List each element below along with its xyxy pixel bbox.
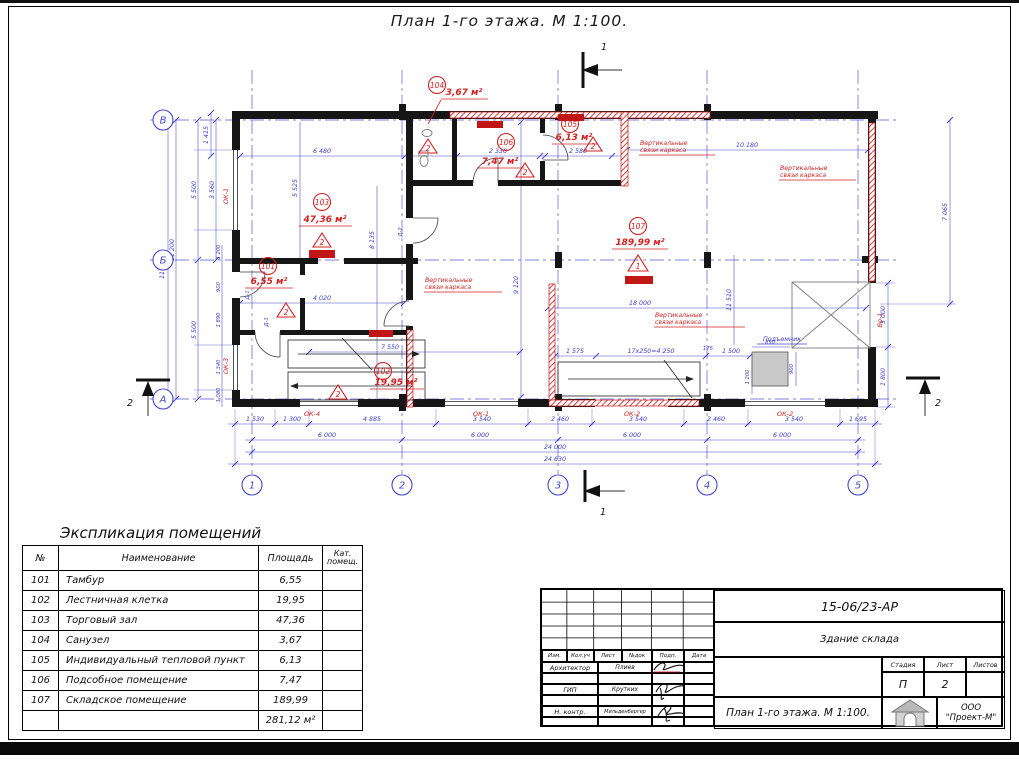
col-area: Площадь (259, 546, 323, 571)
room-area: 189,99 м² (615, 238, 664, 248)
room-area: 47,36 м² (303, 215, 347, 225)
col-cat-line2: помещ. (327, 558, 358, 566)
dim: 175 (703, 346, 714, 352)
room-area: 6,13 м² (556, 133, 593, 143)
room-area: 189,99 (259, 691, 323, 711)
section-label: 1 (601, 42, 607, 53)
dim: 1 890 (216, 312, 222, 328)
stamp-hdr-ndok: №док (622, 650, 652, 662)
sheets-value (966, 672, 1005, 697)
window-label: ОК-3 (222, 358, 230, 374)
annotation: Вертикальные (425, 277, 473, 284)
section-label: 1 (600, 507, 606, 518)
dim: 1 300 (283, 416, 301, 423)
doc-number: 15-06/23-АР (714, 590, 1005, 622)
axis-col: 5 (855, 481, 861, 492)
dim: 4 020 (313, 295, 331, 302)
table-header-row: № Наименование Площадь Кат. помещ. (23, 546, 363, 571)
stamp-hdr-kol: Кол.уч (567, 650, 594, 662)
room-cat (323, 571, 363, 591)
room-area: 7,47 (259, 671, 323, 691)
sheet-label: Лист (924, 657, 966, 672)
role-gip: ГИП (542, 684, 598, 695)
room-area: 3,67 (259, 631, 323, 651)
section-label: 2 (127, 398, 133, 409)
annotation: Вертикальные (640, 140, 688, 147)
dim: 5 500 (191, 181, 198, 199)
blank-cell (598, 673, 652, 684)
stamp-hdr-list: Лист (594, 650, 622, 662)
room-no: 107 (23, 691, 59, 711)
section-label: 2 (935, 398, 941, 409)
window-glyphs (234, 150, 826, 406)
room-area: 19,95 (259, 591, 323, 611)
object-name: Здание склада (714, 622, 1005, 657)
company-name: ООО "Проект-М" (937, 697, 1005, 729)
name-ncontr: Мильденбергер (598, 706, 652, 717)
dim: 10 180 (736, 142, 758, 149)
name-architect: Плиев (598, 662, 652, 673)
company-line1: ООО (961, 703, 981, 713)
annotation: связи каркаса (655, 319, 701, 326)
sheet-value: 2 (924, 672, 966, 697)
dim: 4 885 (363, 416, 381, 423)
table-row: 103 Торговый зал 47,36 (23, 611, 363, 631)
dim: 11 510 (726, 289, 733, 311)
col-num: № (23, 546, 59, 571)
room-number: 104 (430, 81, 445, 90)
room-cat (323, 651, 363, 671)
room-cat: 1 (636, 262, 641, 271)
room-number: 103 (315, 198, 330, 207)
table-row: 104 Санузел 3,67 (23, 631, 363, 651)
annotation: Вертикальные (780, 165, 828, 172)
dim: 900 (216, 281, 222, 292)
room-name: Санузел (59, 631, 259, 651)
dim: 7 065 (942, 203, 949, 221)
blank-cell (542, 695, 598, 706)
room-name: Складское помещение (59, 691, 259, 711)
window-label: ОК-2 (777, 410, 793, 418)
approval-grid (542, 590, 714, 650)
door-label: Д-1 (245, 290, 251, 300)
dim: 1 080 (216, 387, 222, 403)
room-cat (323, 671, 363, 691)
total-empty (59, 711, 259, 731)
room-no: 104 (23, 631, 59, 651)
room-cat (323, 691, 363, 711)
staircase-hall (558, 360, 700, 398)
room-no: 106 (23, 671, 59, 691)
lift-label: Подъемник (763, 336, 801, 343)
room-cat: 2 (426, 144, 431, 153)
room-area: 6,13 (259, 651, 323, 671)
table-row: 105 Индивидуальный тепловой пункт 6,13 (23, 651, 363, 671)
room-cat: 2 (591, 142, 596, 151)
room-number: 102 (376, 367, 391, 376)
dim: 17x250=4 250 (627, 348, 674, 355)
room-number: 105 (563, 120, 578, 129)
room-number: 106 (499, 138, 514, 147)
table-total-row: 281,12 м² (23, 711, 363, 731)
room-no: 102 (23, 591, 59, 611)
room-name: Тамбур (59, 571, 259, 591)
axis-col: 3 (555, 481, 561, 492)
gate-label: Вр-1 (876, 312, 884, 327)
room-cat: 2 (523, 168, 528, 177)
dim: 2 460 (707, 416, 725, 423)
company-line2: "Проект-М" (946, 713, 997, 723)
blank-cell (542, 673, 598, 684)
dim: 9 120 (513, 276, 520, 294)
house-logo-icon (890, 698, 930, 728)
signatures (650, 658, 690, 726)
window-label: ОК-4 (304, 410, 320, 418)
sheets-label: Листов (966, 657, 1005, 672)
col-cat: Кат. помещ. (323, 546, 363, 571)
room-cat (323, 611, 363, 631)
table-row: 107 Складское помещение 189,99 (23, 691, 363, 711)
room-no: 103 (23, 611, 59, 631)
axis-row: Б (160, 256, 167, 267)
room-schedule-table: № Наименование Площадь Кат. помещ. 101 Т… (22, 545, 363, 731)
staircase-102 (288, 338, 425, 400)
axis-row: А (159, 395, 167, 406)
dim: 1 800 (880, 368, 887, 386)
dim: 6 000 (773, 432, 791, 439)
dim: 6 000 (623, 432, 641, 439)
dim: 1 200 (745, 369, 751, 385)
company-logo-cell (882, 697, 937, 729)
room-schedule-title: Экспликация помещений (60, 524, 261, 542)
big-empty-cell (714, 657, 882, 697)
axis-col: 4 (704, 481, 710, 492)
stamp-hdr-izm: Изм. (542, 650, 567, 662)
room-name: Лестничная клетка (59, 591, 259, 611)
total-empty (323, 711, 363, 731)
blank-cell (598, 695, 652, 706)
axis-col: 2 (399, 481, 405, 492)
room-cat: 2 (284, 308, 289, 317)
role-ncontr: Н. контр. (542, 706, 598, 717)
dim: 6 480 (313, 148, 331, 155)
dim: 1 530 (246, 416, 264, 423)
table-row: 102 Лестничная клетка 19,95 (23, 591, 363, 611)
blank-cell (542, 717, 598, 727)
door-label: Д-3 (264, 317, 270, 327)
window-label: ОК-1 (473, 410, 489, 418)
dim: 8 135 (369, 231, 376, 249)
dim: 6 000 (471, 432, 489, 439)
name-gip: Крутких (598, 684, 652, 695)
dim: 24 630 (544, 456, 566, 463)
annotation: связи каркаса (640, 147, 686, 154)
room-cat: 2 (320, 238, 325, 247)
axis-row: В (160, 116, 167, 127)
total-area: 281,12 м² (259, 711, 323, 731)
room-name: Торговый зал (59, 611, 259, 631)
dim: 1 415 (203, 126, 210, 144)
room-no: 105 (23, 651, 59, 671)
room-name: Индивидуальный тепловой пункт (59, 651, 259, 671)
dim: 6 000 (318, 432, 336, 439)
dim: 24 000 (544, 444, 566, 451)
room-number: 107 (631, 222, 646, 231)
dim: 2 330 (489, 148, 507, 155)
dim: 2 460 (551, 416, 569, 423)
dim: 900 (789, 363, 795, 374)
table-row: 101 Тамбур 6,55 (23, 571, 363, 591)
room-cat (323, 591, 363, 611)
room-area: 3,67 м² (446, 88, 483, 98)
stage-label: Стадия (882, 657, 924, 672)
title-block: Изм. Кол.уч Лист №док Подп. Дата Архитек… (540, 588, 1003, 727)
annotation: Вертикальные (655, 312, 703, 319)
room-area: 19,95 м² (375, 378, 418, 388)
blank-cell (598, 717, 652, 727)
dim: 1 500 (722, 348, 740, 355)
dim: 1 695 (849, 416, 867, 423)
room-number: 101 (261, 262, 275, 271)
room-area: 7,47 м² (482, 157, 519, 167)
axis-col: 1 (249, 481, 255, 492)
window-label: ОК-1 (222, 188, 230, 204)
room-cat (323, 631, 363, 651)
dim: 1 575 (566, 348, 584, 355)
role-architect: Архитектор (542, 662, 598, 673)
room-area: 47,36 (259, 611, 323, 631)
door-label: Д-2 (398, 227, 404, 237)
dim: 18 000 (629, 300, 651, 307)
window-label: ОК-2 (624, 410, 640, 418)
dimension-lines (165, 110, 956, 467)
dim: 5 500 (191, 321, 198, 339)
dim: 5 525 (292, 179, 299, 197)
annotation: связи каркаса (425, 284, 471, 291)
annotation: связи каркаса (780, 172, 826, 179)
stage-value: П (882, 672, 924, 697)
lift: Подъемник (752, 336, 807, 386)
col-name: Наименование (59, 546, 259, 571)
dim: 3 560 (209, 181, 216, 199)
room-cat: 2 (336, 390, 341, 399)
room-area: 6,55 м² (251, 277, 288, 287)
room-no: 101 (23, 571, 59, 591)
drawing-name: План 1-го этажа. М 1:100. (714, 697, 882, 729)
dim: 7 550 (381, 344, 399, 351)
room-area: 6,55 (259, 571, 323, 591)
room-name: Подсобное помещение (59, 671, 259, 691)
dim: 1 200 (216, 244, 222, 260)
total-empty (23, 711, 59, 731)
table-row: 106 Подсобное помещение 7,47 (23, 671, 363, 691)
